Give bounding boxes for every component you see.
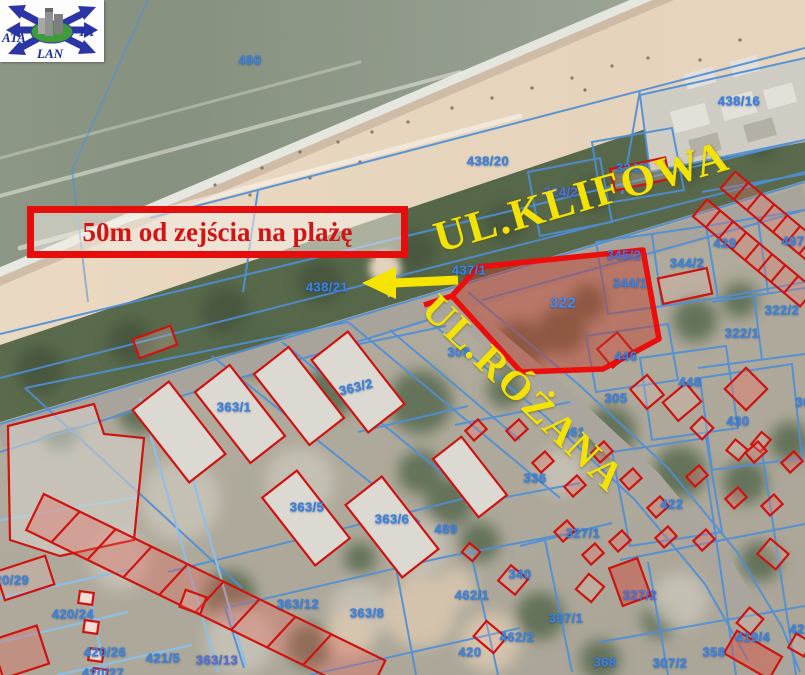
map-canvas[interactable]: 490438/16438/20324/1324/2344/1344/2345/2… [0,0,805,675]
logo-text-right: TA [78,24,94,39]
cadastral-overlay [0,0,805,675]
agency-logo: ATA TA LAN [0,0,104,62]
distance-annotation-text: 50m od zejścia na plażę [83,217,353,248]
logo-text-bottom: LAN [36,46,64,61]
logo-text-left: ATA [1,30,26,45]
distance-annotation-box: 50m od zejścia na plażę [27,206,408,258]
agency-logo-graphic: ATA TA LAN [0,0,104,62]
